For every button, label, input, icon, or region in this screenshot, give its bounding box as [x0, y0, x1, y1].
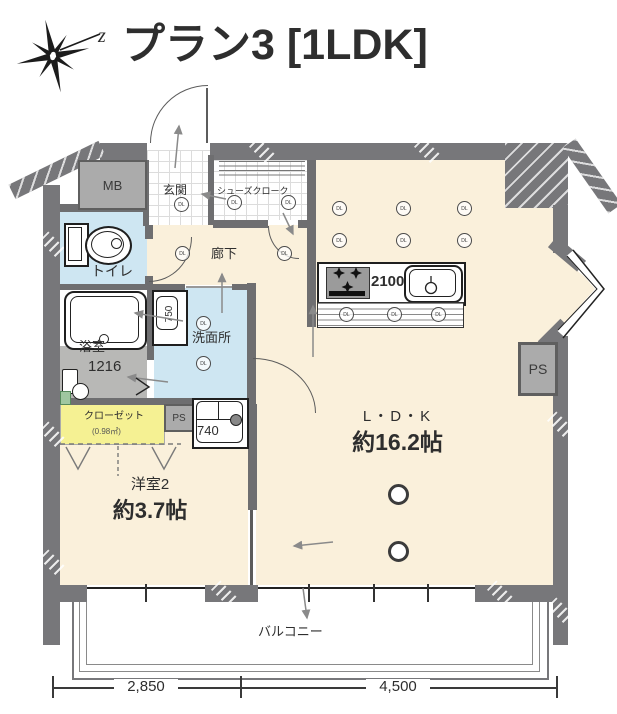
downlight-icon: DL [387, 307, 402, 322]
compass-north-label: z [98, 26, 106, 46]
ps-right-label: PS [529, 361, 548, 377]
bathroom-size-label: 1216 [88, 359, 121, 374]
washroom-label: 洗面所 [192, 331, 231, 344]
downlight-icon: DL [332, 201, 347, 216]
wall-toilet-bottom [60, 284, 153, 290]
room-ldk-main [316, 160, 505, 585]
downlight-icon: DL [431, 307, 446, 322]
bath-green-item [60, 391, 71, 405]
entrance-door-arc [150, 85, 208, 143]
downlight-icon: DL [175, 246, 190, 261]
wall-diagonal-topright [563, 139, 617, 214]
closet-label: クローゼット [84, 412, 144, 422]
downlight-icon: DL [196, 316, 211, 331]
downlight-label: DL [200, 321, 206, 327]
wall-top-right-block [505, 143, 568, 208]
downlight-label: DL [281, 251, 287, 257]
wall-corridor-ldk [307, 160, 316, 327]
bedroom-area-label: 約3.7帖 [85, 500, 215, 522]
floorplan-page: { "page_title": "プラン3 [1LDK]", "compass"… [0, 0, 617, 714]
downlight-label: DL [400, 238, 406, 244]
ceiling-light-icon [388, 484, 409, 505]
downlight-label: DL [461, 238, 467, 244]
toilet-label: トイレ [91, 264, 133, 278]
toilet-tank-inner [68, 227, 82, 261]
stove-grill-bar [329, 291, 365, 296]
wall-bottom-1 [48, 585, 87, 602]
downlight-icon: DL [457, 233, 472, 248]
downlight-icon: DL [396, 201, 411, 216]
bedroom-sliding-door [250, 510, 253, 585]
ldk-label: L・D・K [345, 409, 450, 424]
downlight-icon: DL [227, 195, 242, 210]
ldk-area-label: 約16.2帖 [335, 431, 460, 454]
washer-faucet [230, 414, 242, 426]
wall-top-left [100, 143, 147, 160]
downlight-icon: DL [196, 356, 211, 371]
downlight-label: DL [178, 202, 184, 208]
bath-stool [72, 383, 89, 400]
washer-pan-divider-v [218, 401, 219, 420]
washer-width-label: 740 [197, 424, 219, 437]
downlight-label: DL [461, 206, 467, 212]
wall-shoecloset-bottom-left [213, 220, 268, 228]
downlight-label: DL [435, 312, 441, 318]
downlight-icon: DL [457, 201, 472, 216]
balcony-label: バルコニー [258, 625, 323, 638]
dimension-tick [556, 676, 558, 698]
bathroom-label: 浴室 [79, 340, 105, 353]
downlight-label: DL [343, 312, 349, 318]
downlight-label: DL [336, 238, 342, 244]
downlight-label: DL [231, 200, 237, 206]
downlight-icon: DL [174, 197, 189, 212]
ps-left-box: PS [164, 404, 194, 432]
shoe-closet-label: シューズクローク [217, 187, 289, 196]
window-mullion [427, 584, 429, 602]
page-title: プラン3 [1LDK] [122, 24, 428, 67]
room-ldk-right [505, 208, 553, 585]
downlight-icon: DL [332, 233, 347, 248]
entrance-door-leaf [206, 88, 208, 143]
closet-area-label: (0.98㎡) [92, 428, 121, 436]
vanity-width-label: 750 [165, 299, 175, 329]
window-mullion [145, 584, 147, 602]
ceiling-light-icon [388, 541, 409, 562]
downlight-icon: DL [396, 233, 411, 248]
hallway-label: 廊下 [211, 247, 237, 260]
downlight-icon: DL [281, 195, 296, 210]
dimension-right-label: 4,500 [366, 679, 430, 694]
washroom-sliding-door [186, 286, 232, 288]
wall-bedroom-ldk [248, 404, 257, 510]
window-mullion [373, 584, 375, 602]
toilet-flush-knob [111, 238, 122, 249]
downlight-label: DL [400, 206, 406, 212]
downlight-label: DL [285, 200, 291, 206]
dimension-left-label: 2,850 [114, 679, 178, 694]
window-mullion [308, 584, 310, 602]
downlight-label: DL [391, 312, 397, 318]
wall-hatch-tick [547, 597, 573, 623]
kitchen-sink-inner [409, 269, 456, 297]
downlight-label: DL [336, 206, 342, 212]
shoe-closet-shelf-lines [219, 161, 305, 178]
mb-box: MB [78, 160, 147, 210]
mb-label: MB [103, 178, 123, 193]
ps-left-label: PS [172, 413, 185, 424]
downlight-label: DL [179, 251, 185, 257]
kitchen-width-label: 2100 [371, 274, 404, 289]
bedroom-label: 洋室2 [105, 477, 195, 492]
wall-shoecloset-bottom-right [298, 220, 307, 228]
compass-icon [8, 8, 118, 108]
entrance-label: 玄関 [163, 184, 187, 196]
room-ldk-lowerleft [256, 285, 316, 585]
downlight-label: DL [200, 361, 206, 367]
downlight-icon: DL [339, 307, 354, 322]
downlight-icon: DL [277, 246, 292, 261]
dimension-tick [240, 676, 242, 698]
wall-entrance-right [208, 155, 214, 225]
dimension-tick [52, 676, 54, 698]
ps-right-box: PS [518, 342, 558, 396]
